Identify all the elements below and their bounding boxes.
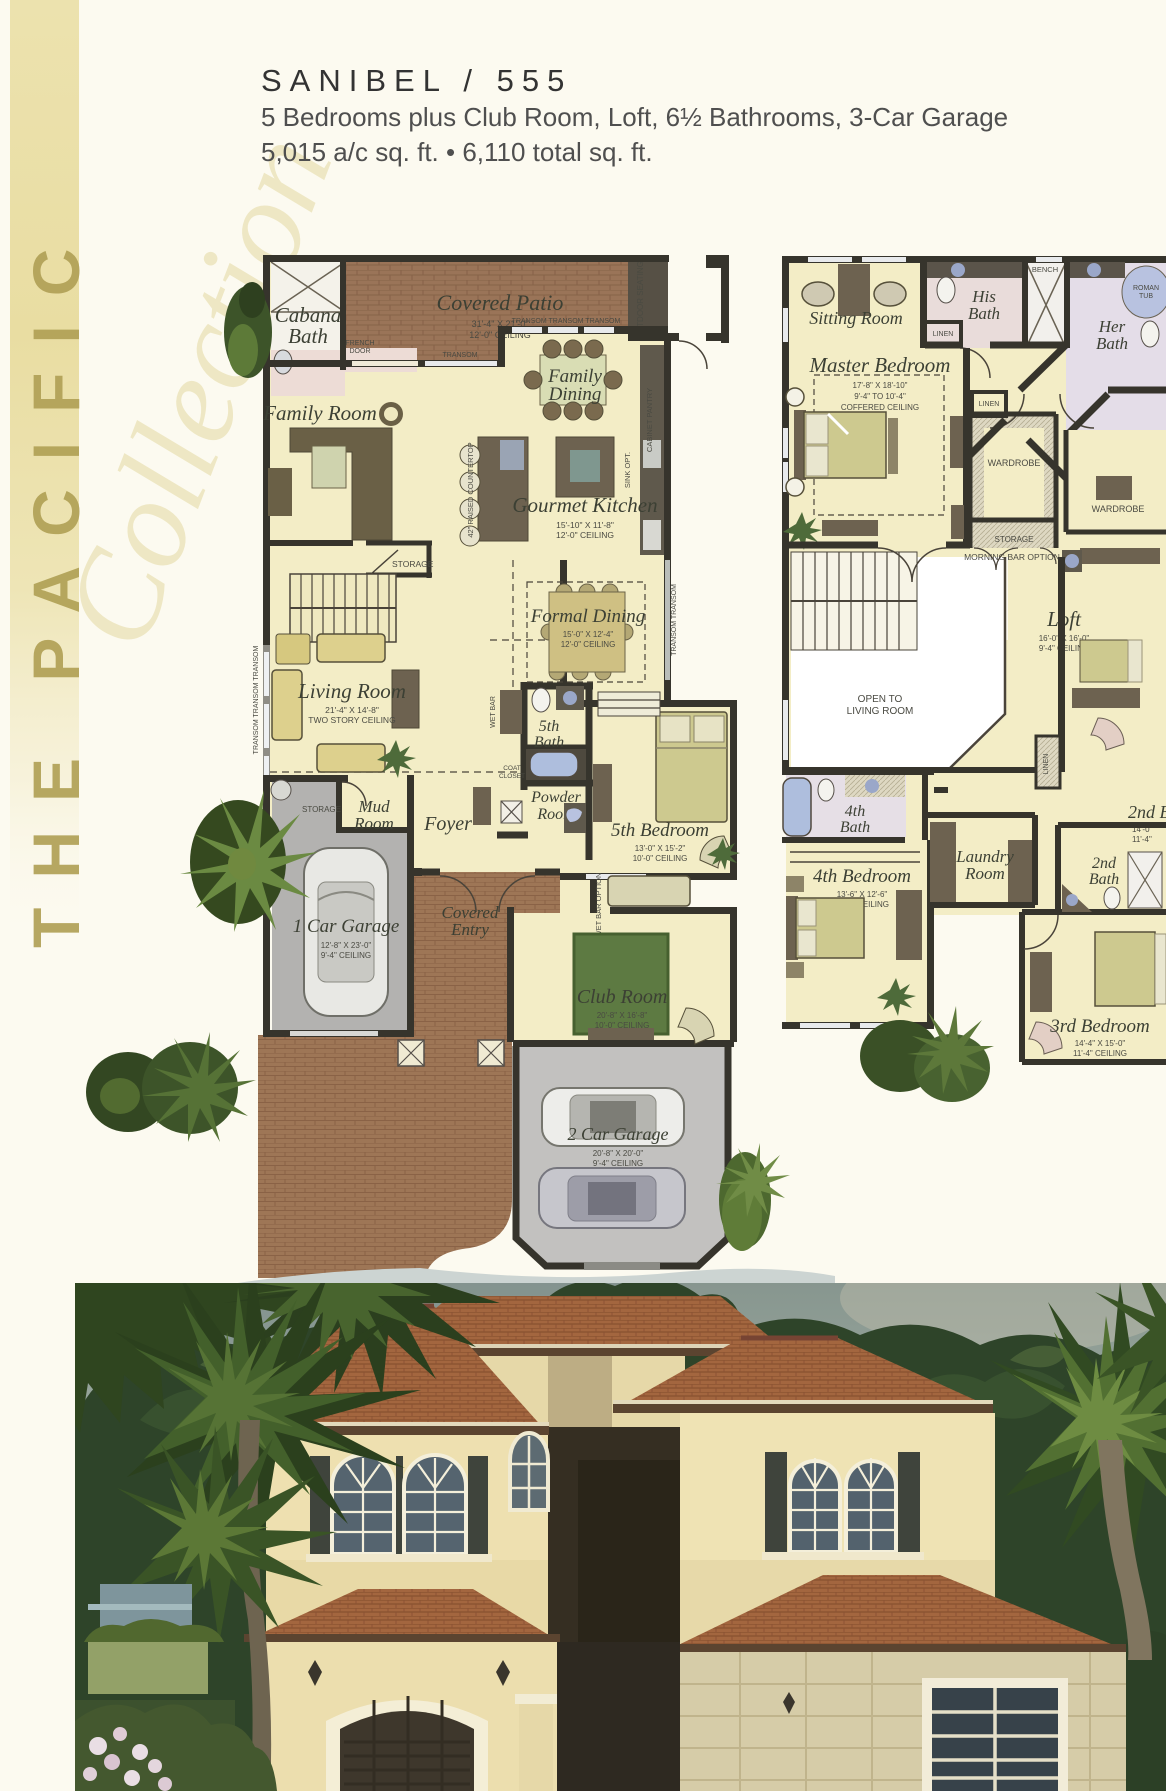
svg-text:COFFERED CEILING: COFFERED CEILING <box>841 403 919 412</box>
svg-text:Bath: Bath <box>968 304 1000 323</box>
svg-text:WARDROBE: WARDROBE <box>988 458 1041 468</box>
svg-text:WET BAR OPTION: WET BAR OPTION <box>594 873 603 938</box>
svg-text:TRANSOM TRANSOM: TRANSOM TRANSOM <box>671 584 678 656</box>
svg-text:17'-8" X 18'-10": 17'-8" X 18'-10" <box>853 381 908 390</box>
svg-text:12'-8" X 23'-0": 12'-8" X 23'-0" <box>321 941 372 950</box>
svg-text:Room: Room <box>353 814 394 833</box>
svg-text:Bath: Bath <box>534 734 564 751</box>
svg-text:4th: 4th <box>845 803 865 820</box>
svg-text:LINEN: LINEN <box>979 401 1000 408</box>
svg-text:SINK OPT.: SINK OPT. <box>623 452 632 488</box>
svg-text:Bath: Bath <box>288 324 328 348</box>
svg-text:5,015 a/c sq. ft. • 6,110 tota: 5,015 a/c sq. ft. • 6,110 total sq. ft. <box>261 137 653 167</box>
svg-text:TRANSOM TRANSOM TRANSOM: TRANSOM TRANSOM TRANSOM <box>253 646 260 755</box>
svg-text:5th: 5th <box>539 718 559 735</box>
svg-text:12'-0" CEILING: 12'-0" CEILING <box>556 530 614 540</box>
svg-text:Covered Patio: Covered Patio <box>437 290 564 315</box>
svg-text:Club Room: Club Room <box>577 986 668 1008</box>
svg-text:12'-0" CEILING: 12'-0" CEILING <box>561 640 616 649</box>
svg-text:LINEN: LINEN <box>933 331 954 338</box>
svg-text:ROMAN: ROMAN <box>1133 285 1159 292</box>
svg-text:Living Room: Living Room <box>297 679 406 703</box>
svg-text:Gourmet Kitchen: Gourmet Kitchen <box>512 493 657 517</box>
svg-text:14'-4" X 15'-0": 14'-4" X 15'-0" <box>1075 1039 1126 1048</box>
svg-text:STORAGE: STORAGE <box>302 805 341 814</box>
svg-text:CABINET PANTRY: CABINET PANTRY <box>645 388 654 452</box>
svg-text:5 Bedrooms plus Club Room, Lof: 5 Bedrooms plus Club Room, Loft, 6½ Bath… <box>261 102 1008 132</box>
svg-text:LIVING ROOM: LIVING ROOM <box>847 706 914 717</box>
svg-text:WET BAR: WET BAR <box>490 696 497 728</box>
svg-text:3rd Bedroom: 3rd Bedroom <box>1049 1016 1149 1037</box>
svg-text:15'-0" X 12'-4": 15'-0" X 12'-4" <box>563 630 614 639</box>
svg-text:WARDROBE: WARDROBE <box>1092 504 1145 514</box>
svg-text:TRANSOM TRANSOM TRANSOM: TRANSOM TRANSOM TRANSOM <box>512 318 621 325</box>
svg-text:20'-8" X 20'-0": 20'-8" X 20'-0" <box>593 1149 644 1158</box>
svg-text:13'-0" X 15'-2": 13'-0" X 15'-2" <box>635 844 686 853</box>
svg-text:2 Car Garage: 2 Car Garage <box>567 1124 668 1144</box>
svg-text:11'-4": 11'-4" <box>1132 835 1152 844</box>
svg-text:42" RAISED COUNTERTOP: 42" RAISED COUNTERTOP <box>466 442 475 537</box>
svg-text:OPEN TO: OPEN TO <box>858 694 903 705</box>
svg-text:1 Car Garage: 1 Car Garage <box>293 916 400 937</box>
svg-text:BENCH: BENCH <box>1032 265 1058 274</box>
svg-text:Bath: Bath <box>1096 334 1128 353</box>
svg-text:Entry: Entry <box>450 920 489 939</box>
svg-text:TWO STORY CEILING: TWO STORY CEILING <box>308 715 395 725</box>
svg-text:COAT: COAT <box>503 765 521 772</box>
svg-text:STORAGE: STORAGE <box>392 559 434 569</box>
svg-text:CLOSET: CLOSET <box>499 773 525 780</box>
svg-text:21'-4" X 14'-8": 21'-4" X 14'-8" <box>325 705 379 715</box>
svg-text:Bath: Bath <box>840 819 870 836</box>
svg-text:MORNING BAR OPTION: MORNING BAR OPTION <box>964 552 1060 562</box>
svg-text:STORAGE: STORAGE <box>995 535 1034 544</box>
svg-text:Bath: Bath <box>1089 871 1119 888</box>
svg-text:2nd: 2nd <box>1092 855 1117 872</box>
svg-text:SANIBEL / 555: SANIBEL / 555 <box>261 63 572 98</box>
svg-text:9'-4" CEILING: 9'-4" CEILING <box>593 1159 643 1168</box>
svg-text:Sitting Room: Sitting Room <box>809 308 903 328</box>
svg-text:9'-4" CEILING: 9'-4" CEILING <box>321 951 371 960</box>
svg-text:FRENCH: FRENCH <box>345 340 374 347</box>
svg-text:20'-8" X 16'-8": 20'-8" X 16'-8" <box>597 1011 648 1020</box>
svg-text:DOOR: DOOR <box>350 348 371 355</box>
svg-text:Dining: Dining <box>548 384 602 405</box>
svg-text:Foyer: Foyer <box>423 813 472 835</box>
svg-text:15'-10" X 11'-8": 15'-10" X 11'-8" <box>556 520 614 530</box>
svg-text:10'-0" CEILING: 10'-0" CEILING <box>633 854 688 863</box>
svg-text:2nd B: 2nd B <box>1128 802 1166 822</box>
svg-text:Family Room: Family Room <box>262 401 377 425</box>
svg-text:10'-0" CEILING: 10'-0" CEILING <box>595 1021 650 1030</box>
svg-text:Master Bedroom: Master Bedroom <box>809 353 951 377</box>
svg-text:THE PACIFIC: THE PACIFIC <box>19 220 93 948</box>
svg-text:5th Bedroom: 5th Bedroom <box>611 820 709 841</box>
svg-text:TRANSOM: TRANSOM <box>443 352 478 359</box>
svg-text:4th Bedroom: 4th Bedroom <box>813 866 911 887</box>
svg-text:TUB: TUB <box>1139 293 1153 300</box>
svg-text:LINEN: LINEN <box>1043 754 1050 775</box>
svg-text:Formal Dining: Formal Dining <box>530 606 646 627</box>
svg-text:Room: Room <box>964 864 1005 883</box>
svg-text:11'-4" CEILING: 11'-4" CEILING <box>1073 1049 1127 1058</box>
svg-text:9'-4" TO 10'-4": 9'-4" TO 10'-4" <box>854 392 906 401</box>
